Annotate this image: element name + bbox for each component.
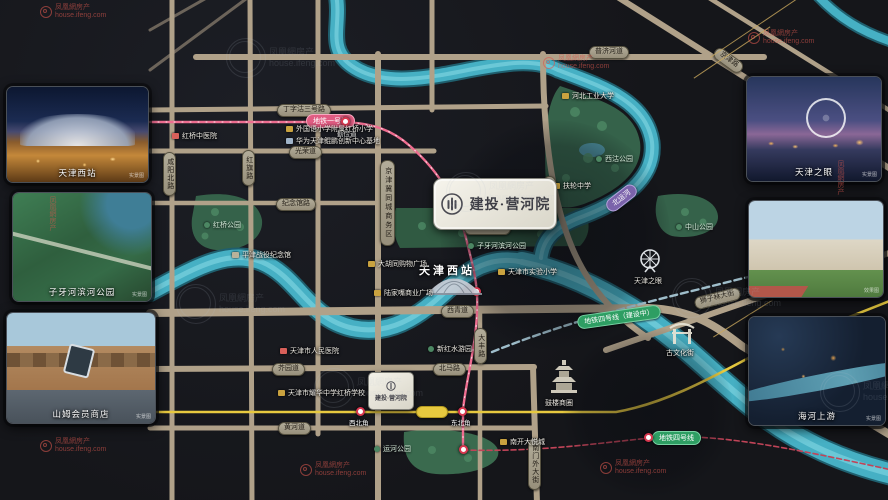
project-site-marker: 建投·营河院 [368,372,414,410]
jiantou-logo-mark-icon [440,192,464,216]
road-badge-dafeng: 大丰路 [474,328,487,364]
road-badge-jieyuan: 芥园道 [272,363,305,376]
poi-hongqiao-tcm-hospital: 红桥中医院 [172,131,217,141]
mall-icon [374,290,381,296]
photo-tag: 实景图 [132,291,147,298]
school-icon [498,269,505,275]
poi-fulun-middle-school: 扶轮中学 [553,181,591,191]
road-badge-beima: 北马路 [433,363,466,376]
photo-school-rendering[interactable]: 效果图 [748,200,884,298]
poi-lujiazui-plaza: 陆家嘴商业广场 [374,288,433,298]
road-badge-xiqing: 西青道 [441,305,474,318]
school-icon [278,390,285,396]
office-icon [286,138,293,144]
project-name: 建投·营河院 [470,194,551,214]
haihe-photo-image [749,317,885,425]
mall-icon [368,261,375,267]
park-icon [468,243,474,249]
poi-hebei-univ-tech: 河北工业大学 [562,91,614,101]
poi-peoples-hospital: 天津市人民医院 [280,346,339,356]
photo-caption: 天津之眼 [747,166,881,178]
ziya-park-photo-image [13,193,151,301]
photo-tianjin-west-station[interactable]: 天津西站 实景图 [6,86,149,183]
sams-club-photo-image [7,313,155,423]
road-badge-xianyangbei: 咸阳北路 [163,152,176,196]
project-name-small: 建投·营河院 [375,393,407,402]
mall-icon [500,439,507,445]
poi-pingjin-memorial: 平津战役纪念馆 [232,250,291,260]
museum-icon [232,252,239,258]
photo-caption: 天津西站 [7,167,148,179]
hospital-icon [280,348,287,354]
poi-experimental-primary: 天津市实验小学 [498,267,557,277]
photo-tag: 效果图 [864,287,879,294]
school-icon [562,93,569,99]
drum-tower-label: 鼓楼商圈 [545,398,573,408]
hospital-icon [172,133,179,139]
drum-tower-icon [549,358,579,396]
park-icon [676,224,682,230]
archway-icon [668,320,696,346]
metro-station-icon [356,407,365,416]
metro-line-4-pill: 地铁四号线 [652,431,701,445]
cbd-zone-badge: 京津冀同城商务区 [380,160,395,246]
road-badge-guangrong: 光荣道 [289,146,322,159]
photo-caption: 子牙河滨河公园 [13,286,151,298]
park-icon [596,156,602,162]
photo-tianjin-eye[interactable]: 天津之眼 实景图 [746,76,882,182]
photo-caption: 山姆会员商店 [7,408,155,420]
school-photo-image [749,201,883,297]
poi-foreign-language-school: 外国语小学附属红桥小学 [286,124,373,134]
ancient-culture-street-label: 古文化街 [666,348,694,358]
location-map-poster: 丁字沽三号路 光荣道 纪念馆路 普济河道 西青道 子牙河北路 芥园道 北马路 黄… [0,0,888,500]
road-badge-puji: 普济河道 [589,46,629,59]
photo-tag: 实景图 [129,172,144,179]
park-icon [204,222,210,228]
poi-yaohua-school: 天津市耀华中学红桥学校 [278,388,365,398]
poi-joy-city: 南开大悦城 [500,437,545,447]
metro-yellow-highlight-pill [416,406,448,418]
station-label-dongbeijiao: 东北角 [451,417,471,427]
park-label-xigu: 西沽公园 [596,154,633,164]
metro-station-icon [459,445,468,454]
road-badge-huanghe: 黄河道 [278,422,311,435]
park-label-hongqiao: 红桥公园 [204,220,241,230]
park-label-yunhe: 运河公园 [374,444,411,454]
photo-tag: 实景图 [862,171,877,178]
park-label-zhongshan: 中山公园 [676,222,713,232]
park-icon [374,446,380,452]
poi-dahutong-mall: 大胡同购物广场 [368,259,427,269]
photo-caption: 海河上游 [749,410,885,422]
jiantou-logo-mark-icon [386,381,396,391]
photo-ziya-river-park[interactable]: 子牙河滨河公园 实景图 [12,192,152,302]
project-logo-plate: 建投·营河院 [433,178,557,230]
poi-xinhong-water-park: 新红水游园 [428,344,472,354]
park-icon [428,346,434,352]
photo-sams-club[interactable]: 山姆会员商店 实景图 [6,312,156,424]
road-badge-jinianguan: 纪念馆路 [276,198,316,211]
station-label-xibeijiao: 西北角 [349,417,369,427]
west-station-label: 天津西站 [419,262,475,278]
metro-station-icon [458,407,467,416]
photo-tag: 实景图 [866,415,881,422]
photo-tag: 实景图 [136,413,151,420]
road-badge-hongqi: 红旗路 [242,150,255,186]
poi-huawei-center: 华为天津鲲鹏创新中心基地 [286,136,380,146]
park-label-ziyahe: 子牙河滨河公园 [468,241,526,251]
photo-haihe-upstream[interactable]: 海河上游 实景图 [748,316,886,426]
tianjin-eye-label: 天津之眼 [634,276,662,286]
metro-station-icon [644,433,653,442]
school-icon [286,126,293,132]
ferris-wheel-icon [636,246,664,274]
